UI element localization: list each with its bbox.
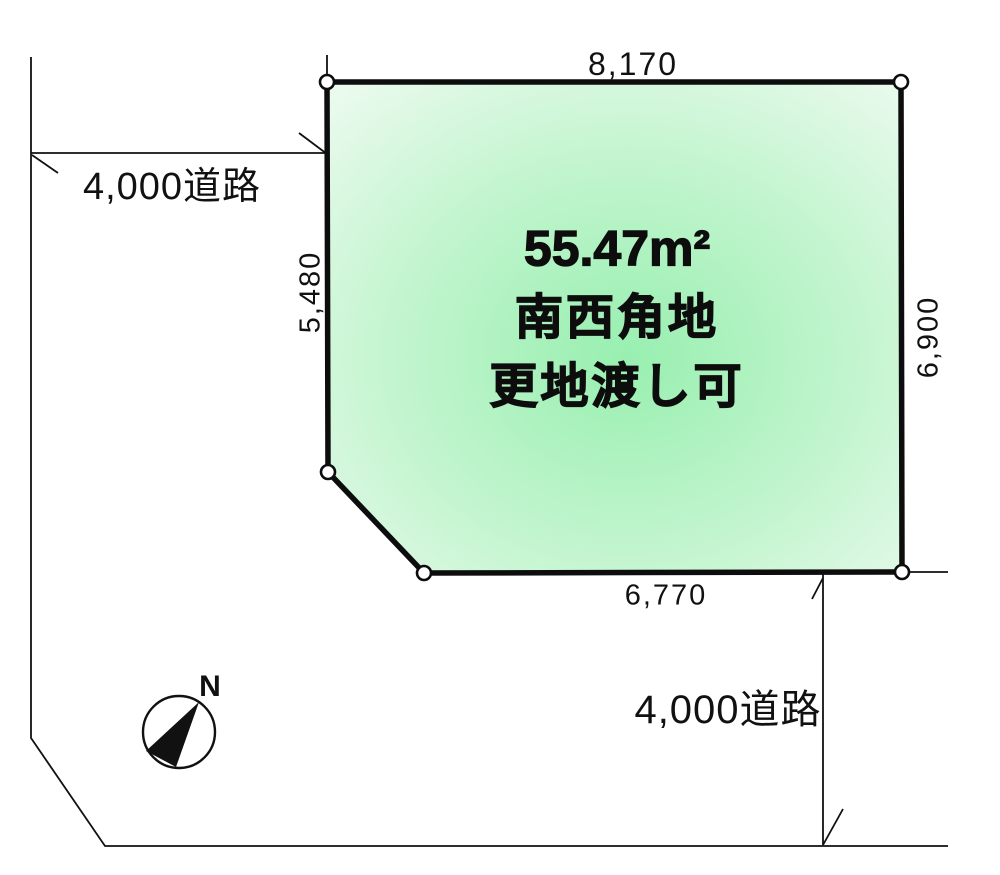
parcel-location-label: 南西角地 [489,284,744,353]
vertex-marker-top-left [320,75,334,89]
road-label-left: 4,000道路 [83,168,261,206]
dimension-right: 6,900 [915,296,944,379]
compass-north-label: N [199,672,221,702]
vertex-marker-left-mid [321,465,335,479]
road-bottom-tick-end [823,809,843,845]
parcel-label: 55.47m² 南西角地 更地渡し可 [489,215,744,422]
road-label-bottom: 4,000道路 [634,690,821,730]
dimension-top: 8,170 [588,48,678,80]
road-left-tick-end [299,133,327,154]
vertex-marker-bottom-right [895,565,909,579]
vertex-marker-bottom-left [417,566,431,580]
dimension-bottom: 6,770 [625,582,708,611]
vertex-marker-top-right [894,75,908,89]
road-bottom-tick-start [812,578,823,599]
parcel-condition-label: 更地渡し可 [489,353,744,422]
dimension-left: 5,480 [297,251,326,334]
land-plot-diagram: 8,170 5,480 6,900 6,770 4,000道路 4,000道路 … [0,0,1000,875]
diagram-drawing [0,0,1000,875]
road-left-tick-start [32,155,58,173]
parcel-area-label: 55.47m² [489,215,744,284]
